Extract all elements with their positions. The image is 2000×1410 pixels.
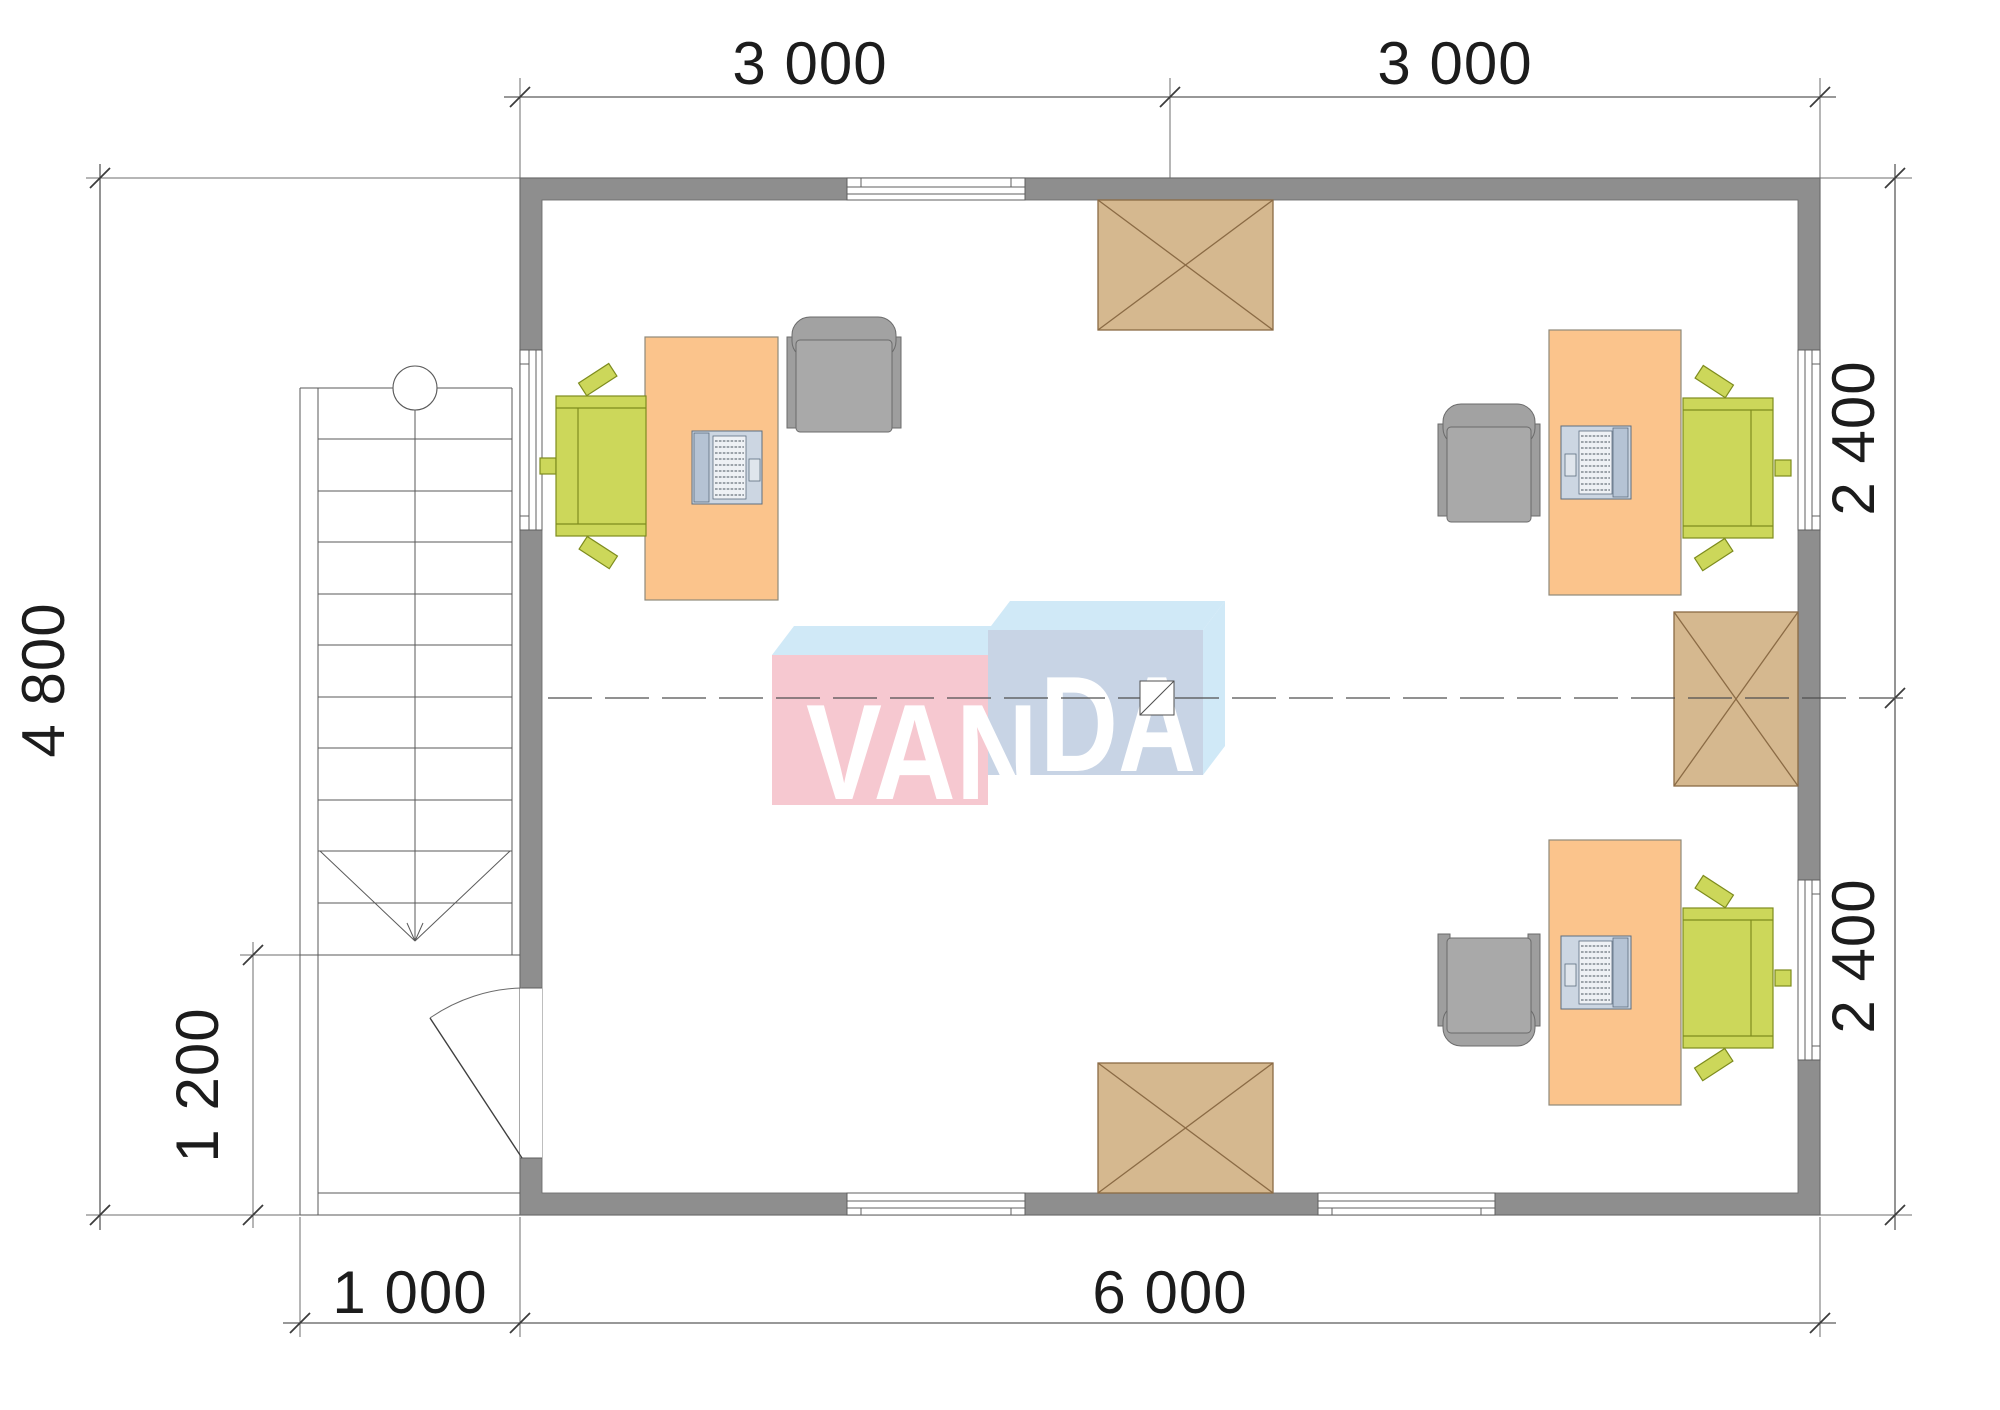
logo-blue-side-face <box>1203 601 1225 775</box>
logo-blue-top-face <box>988 601 1225 630</box>
laptop-top-right <box>1561 426 1631 499</box>
dim-label-top-right: 3 000 <box>1377 30 1532 97</box>
window-right-lower <box>1798 880 1820 1060</box>
window-bottom-left <box>847 1193 1025 1215</box>
laptop-keyboard <box>713 436 746 499</box>
stair-walk-line <box>320 366 510 941</box>
chair-caster <box>540 458 556 474</box>
entrance-door <box>430 988 542 1158</box>
armchair-bottom-right <box>1438 934 1540 1046</box>
logo-pink-top-face <box>772 626 1010 655</box>
staircase <box>300 366 520 1215</box>
dim-label-bottom-porch: 1 000 <box>332 1259 487 1326</box>
stair-walkline-start-circle <box>393 366 437 410</box>
chair-caster <box>1775 460 1791 476</box>
dim-label-porch-height: 1 200 <box>164 1007 231 1162</box>
armchair-left <box>787 317 901 432</box>
cabinet-top <box>1098 200 1273 330</box>
armchair-seat <box>1447 427 1531 522</box>
armchair-seat <box>796 340 892 432</box>
dim-label-bottom-total: 6 000 <box>1092 1259 1247 1326</box>
dim-label-right-lower: 2 400 <box>1820 878 1887 1033</box>
armchair-seat <box>1447 938 1531 1033</box>
door-opening <box>520 988 542 1158</box>
laptop-screen <box>1613 428 1628 497</box>
floor-plan-canvas: 3 000 3 000 2 400 2 400 4 800 1 200 1 00… <box>0 0 2000 1410</box>
logo-text-van: VAN <box>806 676 1038 828</box>
chair-seat <box>556 396 646 536</box>
armchair-top-right <box>1438 404 1540 522</box>
door-swing-arc <box>430 988 522 1018</box>
window-left <box>520 350 542 530</box>
laptop-touchpad <box>1565 454 1576 476</box>
floor-plan-drawing: 3 000 3 000 2 400 2 400 4 800 1 200 1 00… <box>0 0 2000 1410</box>
cabinet-bottom <box>1098 1063 1273 1193</box>
door-leaf <box>430 1018 522 1158</box>
dim-label-top-left: 3 000 <box>732 30 887 97</box>
dim-label-right-upper: 2 400 <box>1820 360 1887 515</box>
laptop-bottom-right <box>1561 936 1631 1009</box>
logo-text-da: DA <box>1040 648 1196 800</box>
laptop-touchpad <box>749 459 760 481</box>
chair-seat <box>1683 398 1773 538</box>
window-top <box>847 178 1025 200</box>
window-right-upper <box>1798 350 1820 530</box>
stair-arrow-icon <box>407 923 415 941</box>
dim-label-left-total: 4 800 <box>10 602 77 757</box>
laptop-screen <box>694 433 709 502</box>
cabinet-right <box>1674 612 1798 786</box>
laptop-keyboard <box>1579 431 1612 494</box>
section-marker <box>1140 681 1174 715</box>
window-bottom-right <box>1318 1193 1495 1215</box>
laptop-left <box>692 431 762 504</box>
